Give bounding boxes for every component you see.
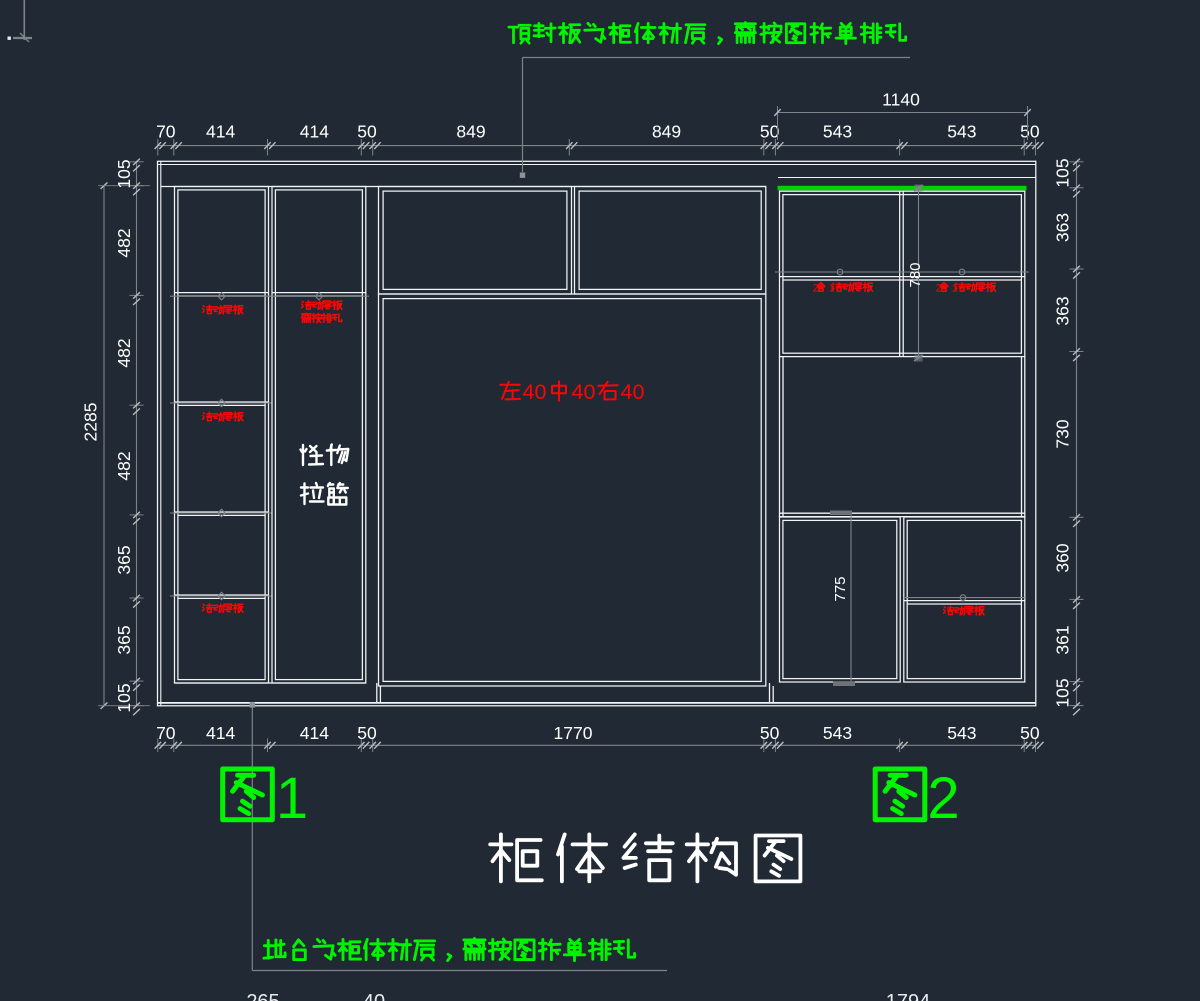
svg-text:365: 365 xyxy=(114,625,134,654)
svg-text:775: 775 xyxy=(832,576,849,601)
svg-text:50: 50 xyxy=(760,122,780,142)
svg-text:1: 1 xyxy=(276,766,308,831)
svg-text:363: 363 xyxy=(1053,296,1073,325)
svg-text:365: 365 xyxy=(114,545,134,574)
svg-text:849: 849 xyxy=(456,122,485,142)
svg-text:40: 40 xyxy=(572,380,596,404)
svg-text:105: 105 xyxy=(114,683,134,712)
svg-text:1770: 1770 xyxy=(554,723,593,743)
svg-text:2: 2 xyxy=(927,766,959,831)
svg-text:2: 2 xyxy=(936,282,942,294)
svg-text:1140: 1140 xyxy=(882,90,920,110)
svg-text:780: 780 xyxy=(907,262,924,287)
svg-text:482: 482 xyxy=(114,451,134,480)
svg-text:105: 105 xyxy=(1053,158,1073,187)
svg-text:482: 482 xyxy=(114,338,134,367)
svg-text:543: 543 xyxy=(823,723,852,743)
svg-text:361: 361 xyxy=(1053,625,1073,654)
svg-text:70: 70 xyxy=(156,122,176,142)
svg-text:40: 40 xyxy=(363,991,385,1001)
svg-text:50: 50 xyxy=(357,122,377,142)
svg-text:50: 50 xyxy=(1020,723,1040,743)
svg-text:543: 543 xyxy=(823,122,852,142)
svg-text:50: 50 xyxy=(357,723,377,743)
svg-text:414: 414 xyxy=(300,122,329,142)
svg-text:70: 70 xyxy=(156,723,176,743)
svg-text:50: 50 xyxy=(1020,122,1040,142)
svg-text:482: 482 xyxy=(114,228,134,257)
svg-text:105: 105 xyxy=(1053,678,1073,707)
svg-text:363: 363 xyxy=(1053,213,1073,242)
svg-text:40: 40 xyxy=(523,380,547,404)
svg-text:50: 50 xyxy=(760,723,780,743)
svg-text:414: 414 xyxy=(300,723,329,743)
svg-text:543: 543 xyxy=(947,723,976,743)
svg-text:414: 414 xyxy=(206,122,235,142)
svg-text:849: 849 xyxy=(652,122,681,142)
svg-text:2: 2 xyxy=(813,282,819,294)
svg-text:2285: 2285 xyxy=(81,403,101,442)
svg-text:414: 414 xyxy=(206,723,235,743)
svg-text:40: 40 xyxy=(621,380,645,404)
svg-text:265: 265 xyxy=(246,991,279,1001)
svg-text:730: 730 xyxy=(1053,419,1073,448)
svg-text:105: 105 xyxy=(114,159,134,188)
svg-text:1794: 1794 xyxy=(886,991,931,1001)
svg-text:360: 360 xyxy=(1053,543,1073,572)
svg-text:543: 543 xyxy=(947,122,976,142)
